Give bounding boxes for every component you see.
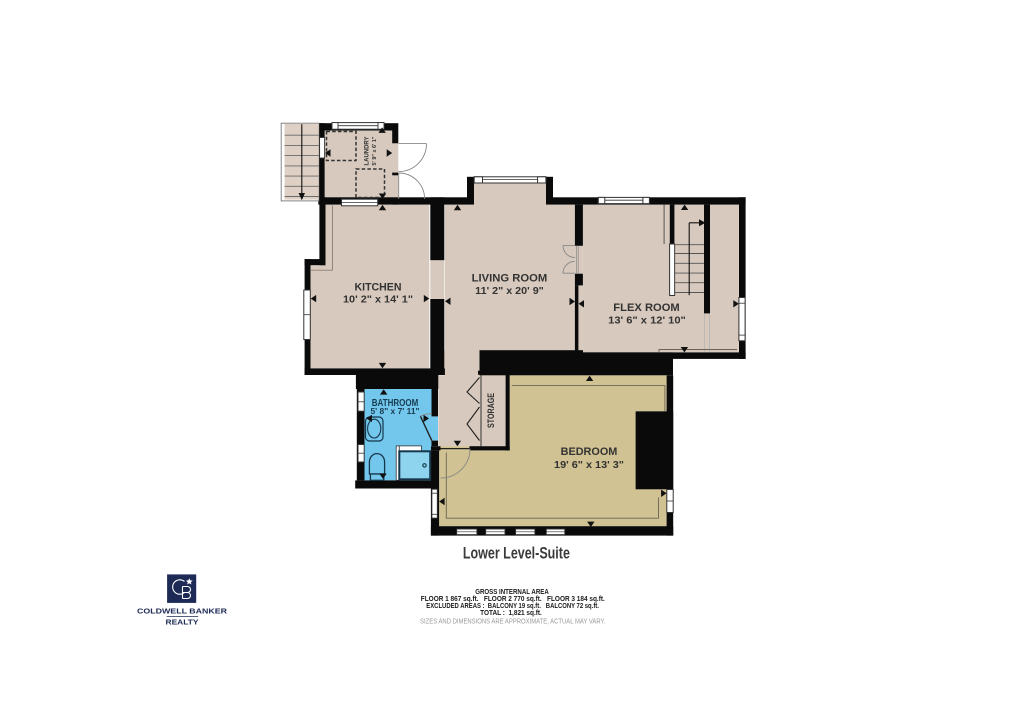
svg-text:TOTAL : 1,821 sq.ft.: TOTAL : 1,821 sq.ft. bbox=[480, 610, 542, 617]
svg-text:REALTY: REALTY bbox=[166, 618, 199, 627]
svg-text:LIVING ROOM: LIVING ROOM bbox=[472, 273, 548, 285]
svg-text:13' 6" x 12' 10": 13' 6" x 12' 10" bbox=[608, 315, 686, 326]
svg-text:FLOOR 1 867 sq.ft. FLOOR 2 7: FLOOR 1 867 sq.ft. FLOOR 2 770 sq.ft. FL… bbox=[421, 596, 605, 603]
svg-text:KITCHEN: KITCHEN bbox=[355, 282, 402, 294]
svg-text:STORAGE: STORAGE bbox=[486, 393, 496, 428]
svg-text:SIZES AND DIMENSIONS ARE APPRO: SIZES AND DIMENSIONS ARE APPROXIMATE, AC… bbox=[420, 618, 605, 625]
svg-text:5' 8" x 7' 11": 5' 8" x 7' 11" bbox=[371, 407, 420, 416]
svg-text:GROSS INTERNAL AREA: GROSS INTERNAL AREA bbox=[475, 589, 549, 596]
svg-text:Lower Level-Suite: Lower Level-Suite bbox=[463, 545, 570, 563]
svg-text:10' 2" x 14' 1": 10' 2" x 14' 1" bbox=[343, 295, 413, 306]
svg-text:FLEX ROOM: FLEX ROOM bbox=[613, 302, 680, 314]
svg-text:19' 6" x 13' 3": 19' 6" x 13' 3" bbox=[554, 460, 624, 471]
svg-text:EXCLUDED AREAS : BALCONY 19 s: EXCLUDED AREAS : BALCONY 19 sq.ft. BALCO… bbox=[426, 603, 599, 610]
svg-text:BEDROOM: BEDROOM bbox=[561, 446, 618, 458]
svg-text:COLDWELL BANKER: COLDWELL BANKER bbox=[137, 606, 228, 615]
svg-text:11' 2" x 20' 9": 11' 2" x 20' 9" bbox=[475, 286, 544, 297]
svg-text:LAUNDRY: LAUNDRY bbox=[363, 136, 370, 166]
svg-text:5' 9" x 6' 1": 5' 9" x 6' 1" bbox=[372, 136, 378, 165]
